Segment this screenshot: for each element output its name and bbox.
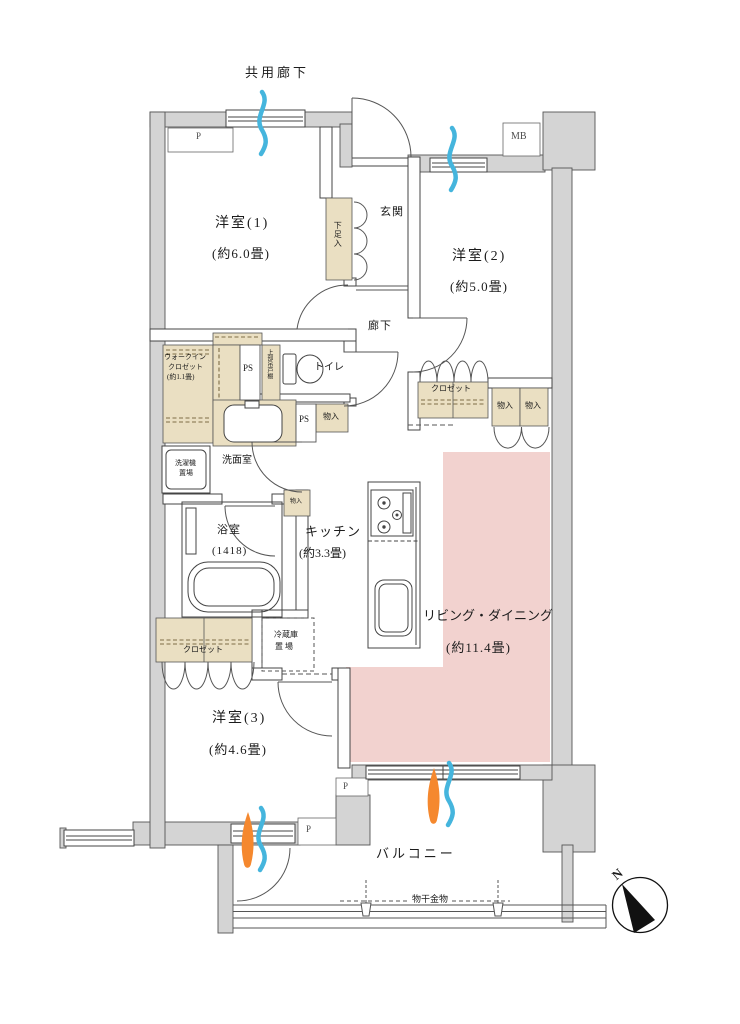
p-label: P <box>196 131 201 141</box>
fridge-label-2: 置 場 <box>275 642 293 651</box>
washbasin <box>224 401 282 442</box>
shoe-cabinet-label: 下足入 <box>333 221 342 248</box>
entrance-label: 玄関 <box>380 206 404 219</box>
room2-name: 洋室(2) <box>452 249 506 265</box>
small-storage-label: 物入 <box>290 499 302 506</box>
floor-plan-drawing <box>0 0 740 1024</box>
wic-label-2: クロゼット <box>168 363 203 371</box>
laundry-hardware-label: 物干金物 <box>410 894 450 904</box>
kitchen-size: (約3.3畳) <box>299 547 346 561</box>
closet-room2-label: クロゼット <box>431 384 471 393</box>
room1-name: 洋室(1) <box>215 216 269 232</box>
floor-plan: 共用廊下 P 洋室(1) (約6.0畳) 玄関 下足入 MB 洋室(2) (約5… <box>0 0 740 1024</box>
balcony-railing <box>233 901 606 928</box>
bathroom-size: (1418) <box>212 545 247 558</box>
ps-label-2: PS <box>299 414 309 424</box>
flame-icon <box>242 812 254 868</box>
hallway-label: 廊下 <box>368 320 392 333</box>
p-label-3: P <box>306 824 311 834</box>
living-dining-name: リビング・ダイニング <box>423 609 553 624</box>
laundry-label-2: 置場 <box>179 469 193 477</box>
kitchen-counter <box>368 482 420 648</box>
storage-b-label: 物入 <box>525 401 541 410</box>
room1-size: (約6.0畳) <box>212 247 270 262</box>
room2-size: (約5.0畳) <box>450 280 508 295</box>
room3-size: (約4.6畳) <box>209 743 267 758</box>
wic-label-1: ウォークイン <box>164 353 206 361</box>
room3-name: 洋室(3) <box>212 711 266 727</box>
upper-cabinet-label: 上部吊戸棚 <box>265 349 272 379</box>
living-dining-size: (約11.4畳) <box>446 641 511 656</box>
closet-room3-label: クロゼット <box>183 645 223 654</box>
ps-label-1: PS <box>243 363 253 373</box>
balcony-label: バルコニー <box>376 847 456 862</box>
wic-label-3: (約1.1畳) <box>167 373 194 381</box>
bathroom-unit <box>182 502 282 617</box>
kitchen-name: キッチン <box>305 525 361 540</box>
p-label-2: P <box>343 781 348 791</box>
storage-a-label: 物入 <box>497 401 513 410</box>
meter-box-label: MB <box>511 131 527 143</box>
common-corridor-label: 共用廊下 <box>245 66 309 81</box>
fridge-label-1: 冷蔵庫 <box>274 630 298 639</box>
bathroom-name: 浴室 <box>217 524 241 537</box>
toilet-label: トイレ <box>314 362 344 374</box>
washroom-label: 洗面室 <box>222 455 252 467</box>
hall-storage-label: 物入 <box>323 412 339 421</box>
compass <box>613 878 668 934</box>
laundry-label-1: 洗濯機 <box>175 459 196 467</box>
entrance-step <box>356 286 408 290</box>
